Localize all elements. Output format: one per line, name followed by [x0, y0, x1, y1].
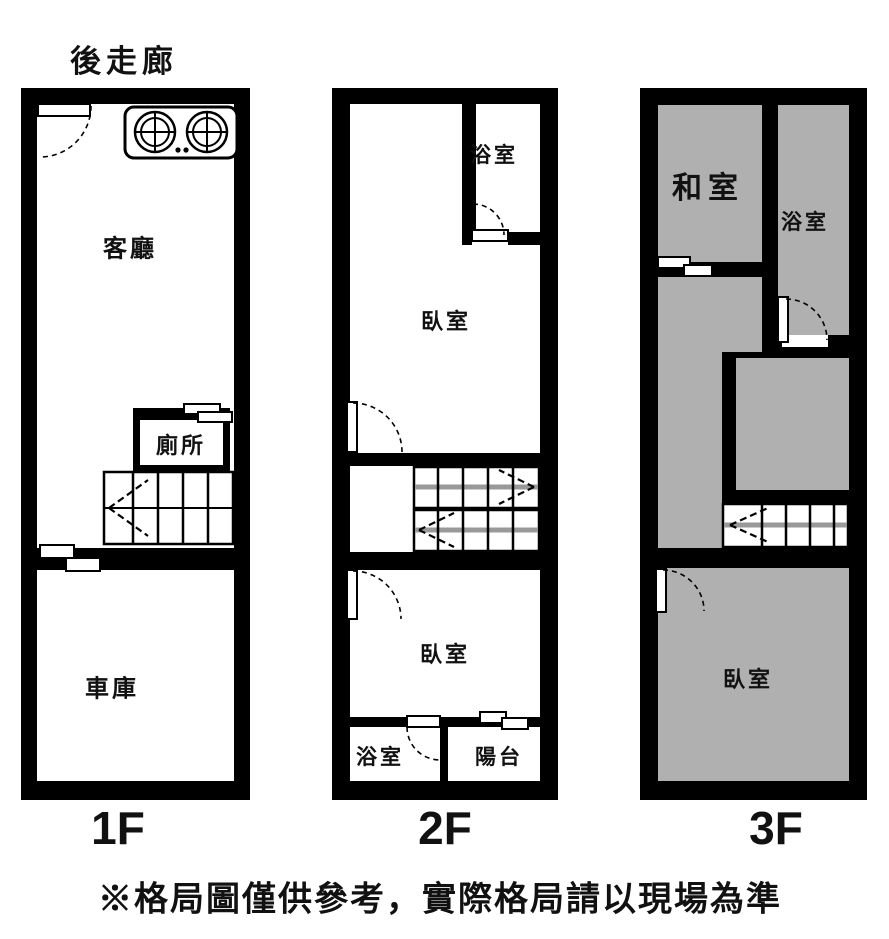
- room-label-living: 客廳: [103, 229, 157, 264]
- window-icon: [480, 712, 528, 729]
- stairs-icon: [723, 504, 848, 547]
- disclaimer-text: ※格局圖僅供參考，實際格局請以現場為準: [98, 872, 782, 921]
- room-label-bedroom: 臥室: [723, 662, 773, 694]
- room-label-garage: 車庫: [85, 669, 139, 704]
- floorplan-2f: 浴室 臥室 臥室 浴室 陽台: [332, 88, 558, 800]
- stairs-icon: [414, 467, 539, 551]
- floor-label-3f: 3F: [749, 801, 803, 855]
- floor-label-1f: 1F: [91, 801, 145, 855]
- room-label-bedroom-lower: 臥室: [420, 637, 470, 669]
- room-label-bathroom-upper: 浴室: [470, 139, 518, 169]
- floorplan-2f-symbols: [332, 88, 558, 800]
- door-arc-icon: [347, 402, 402, 452]
- window-icon: [184, 404, 232, 422]
- rear-corridor-label: 後走廊: [70, 36, 178, 81]
- room-label-balcony: 陽台: [475, 741, 523, 771]
- floor-label-2f: 2F: [418, 801, 472, 855]
- window-icon: [40, 545, 100, 571]
- room-label-bathroom: 浴室: [781, 206, 829, 236]
- floorplan-3f: 和室 浴室 臥室: [640, 88, 867, 800]
- entry-door-arc-icon: [38, 104, 91, 157]
- door-arc-icon: [656, 569, 704, 612]
- room-label-tatami: 和室: [672, 163, 744, 207]
- floorplan-canvas: 後走廊: [0, 0, 889, 939]
- room-label-toilet: 廁所: [156, 428, 206, 460]
- stairs-icon: [104, 472, 233, 544]
- door-arc-icon: [407, 716, 440, 760]
- door-arc-icon: [472, 204, 508, 245]
- room-label-bedroom-upper: 臥室: [421, 304, 471, 336]
- door-arc-icon: [778, 297, 828, 347]
- room-label-bathroom-lower: 浴室: [356, 741, 404, 771]
- window-icon: [658, 257, 712, 276]
- floorplan-1f: 客廳 廁所 車庫: [21, 88, 250, 800]
- stove-icon: [125, 107, 237, 158]
- door-arc-icon: [347, 570, 401, 619]
